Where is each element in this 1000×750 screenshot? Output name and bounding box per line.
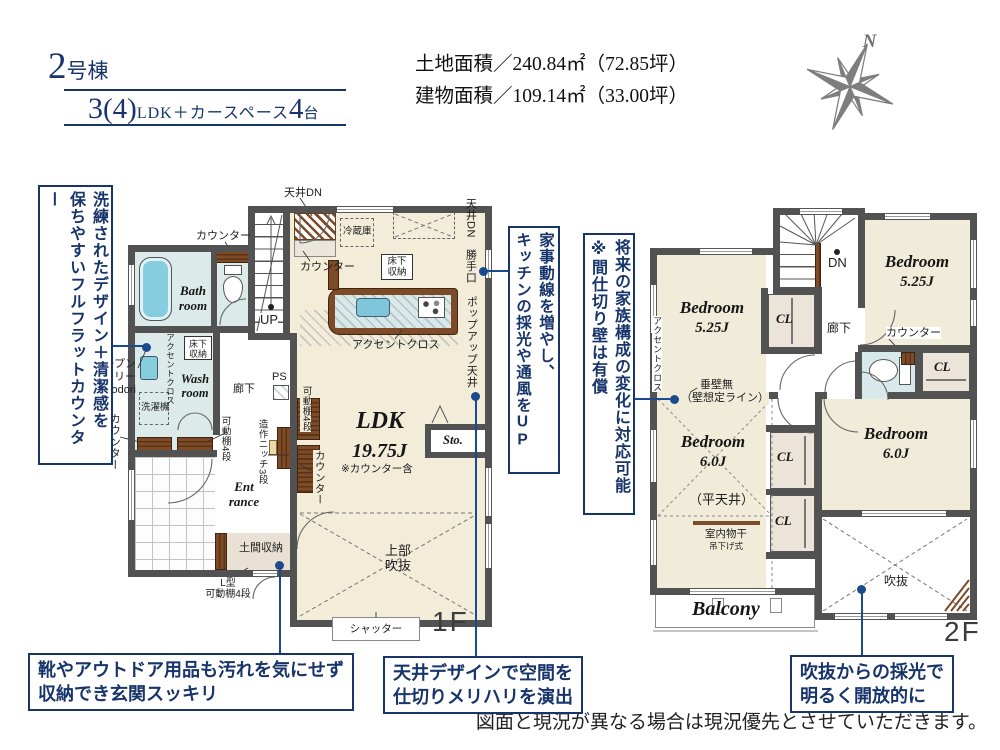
- upper-void-label: 上部吹抜: [378, 544, 418, 573]
- floor-tag-1f: 1F: [432, 606, 469, 638]
- note-ceiling-line1: 天井デザインで空間を: [393, 663, 573, 683]
- bedroom-size: 6.0J: [700, 454, 726, 470]
- bedroom-size: 6.0J: [883, 446, 909, 462]
- hallway-label-2f: 廊下: [827, 322, 851, 335]
- note-void-light: 吹抜からの採光で明るく開放的に: [790, 655, 954, 713]
- wall: [773, 208, 780, 294]
- corridor-niche-wood: [277, 427, 291, 469]
- closet-b-rail: [926, 379, 966, 381]
- l-shelf-line2: 可動棚4段: [205, 589, 251, 600]
- floor-plan-page: 2号棟 3(4)LDK＋カースペース4台 土地面積／240.84㎡（72.85坪…: [0, 0, 1000, 750]
- window: [128, 470, 135, 520]
- callout-line: [630, 398, 670, 400]
- note-flat-counter-col2: 保ちやすいフルフラットカウンター: [41, 191, 87, 459]
- underfloor-storage-label-wash: 床下収納: [184, 336, 212, 360]
- callout-dot-backdoor: [479, 267, 488, 276]
- plan-type: 3(4)LDK＋カースペース4台: [88, 92, 319, 126]
- window: [800, 208, 842, 215]
- counter-label-ldk: カウンター: [313, 450, 325, 505]
- note-kitchen-col1: 家事動線を増やし、: [534, 232, 557, 468]
- plan-ldk-text: LDK＋カースペース: [137, 105, 289, 122]
- window: [337, 206, 393, 213]
- callout-dot-popup: [471, 392, 480, 401]
- building-suffix: 号棟: [67, 59, 109, 83]
- laundry-bar: [693, 521, 760, 525]
- wall: [128, 245, 255, 252]
- laundry-label: 室内物干吊下げ式: [696, 529, 756, 553]
- ceiling-down-hatch: [294, 213, 336, 240]
- doma-label: 土間収納: [239, 542, 283, 554]
- window: [970, 240, 977, 288]
- wash-line2: room: [181, 386, 208, 400]
- washbasin-icon: [140, 356, 158, 380]
- bedroom-60-left-label: Bedroom6.0J: [663, 432, 763, 471]
- underfloor-storage-text-wash: 床下収納: [188, 339, 208, 360]
- bedroom-name: Bedroom: [680, 298, 744, 317]
- wall: [290, 333, 297, 627]
- stairs-dn-label: DN: [828, 256, 847, 271]
- underfloor-storage-text: 床下収納: [386, 257, 408, 279]
- stairs-2f-treads: [780, 243, 815, 289]
- wall: [855, 352, 862, 399]
- bathroom-label: Bathroom: [168, 284, 218, 313]
- callout-dot-void: [857, 585, 866, 594]
- window: [970, 300, 977, 326]
- wall: [815, 287, 822, 353]
- bedroom-size: 5.25J: [695, 320, 729, 336]
- wall: [888, 392, 977, 399]
- closet-a-label: CL: [776, 312, 793, 327]
- bath-line2: room: [179, 298, 207, 313]
- bedroom-name: Bedroom: [885, 252, 949, 271]
- disclaimer: 図面と現況が異なる場合は現況優先とさせていただきます。: [455, 712, 987, 733]
- closet-c-label: CL: [777, 450, 794, 465]
- window: [128, 265, 135, 305]
- callout-line: [475, 397, 477, 656]
- note-kitchen-col2: キッチンの採光や通風をUP: [511, 232, 534, 468]
- window: [970, 420, 977, 468]
- bedroom-name: Bedroom: [681, 432, 745, 451]
- bath-line1: Bath: [180, 283, 206, 298]
- note-flat-counter: 洗練されたデザイン＋清潔感を 保ちやすいフルフラットカウンター: [38, 185, 113, 465]
- window: [650, 520, 657, 565]
- toilet-tank-icon-1f: [224, 265, 242, 275]
- window: [485, 468, 492, 516]
- window: [885, 213, 930, 220]
- wall: [766, 425, 822, 432]
- wall: [766, 489, 822, 495]
- toilet-bowl-icon-2f: [869, 359, 898, 382]
- bedroom-name: Bedroom: [864, 424, 928, 443]
- window: [700, 248, 752, 255]
- washer-label: 洗濯機: [141, 403, 170, 414]
- underfloor-storage-label: 床下収納: [381, 254, 413, 280]
- wall: [128, 450, 217, 457]
- l-shelf-label: L型可動棚4段: [196, 578, 260, 600]
- kitchen-sink-icon: [356, 298, 390, 317]
- counter-label-b: カウンター: [300, 261, 355, 273]
- wall: [858, 345, 977, 352]
- hallway-label-1f: 廊下: [233, 383, 255, 395]
- note-kitchen-col2-up: UP: [514, 414, 531, 450]
- ps-shaft: [273, 385, 289, 400]
- popup-ceiling-label: ポップアップ天井: [465, 296, 477, 388]
- entrance-line2: rance: [229, 494, 259, 509]
- bedroom-60-right-label: Bedroom6.0J: [846, 424, 946, 463]
- floor-tag-2f: 2F: [944, 616, 981, 648]
- stairs-up-label: UP: [260, 313, 278, 328]
- note-genkan: 靴やアウトドア用品も汚れを気にせず収納でき玄関スッキリ: [28, 653, 354, 711]
- ps-label: PS: [272, 371, 287, 383]
- niche-label: 造作ニッチ3段: [256, 419, 267, 485]
- wall: [766, 552, 822, 559]
- shutter-label: シャッター: [332, 617, 420, 641]
- building-number: 2: [48, 46, 67, 87]
- stairs-2f-post: [815, 243, 821, 290]
- plan-ldk-count: 3: [88, 92, 103, 125]
- stairs-up-dot: [268, 304, 274, 310]
- note-future-col1: 将来の家族構成の変化に対応可能: [609, 239, 632, 509]
- wall: [248, 206, 255, 340]
- building-title: 2号棟: [48, 46, 109, 87]
- back-door-label: 勝手口: [464, 249, 476, 284]
- shelf-label-wash: 可動棚4段: [219, 416, 230, 462]
- ldk-note-label: ※カウンター含: [341, 464, 413, 476]
- void-label: 吹抜: [884, 575, 908, 588]
- wall: [761, 348, 822, 354]
- no-wall-label-line1: 垂壁無: [700, 379, 733, 391]
- compass-star: [795, 30, 905, 135]
- window: [650, 430, 657, 482]
- wall: [761, 288, 768, 354]
- entrance-label: Entrance: [218, 480, 270, 509]
- plan-ldk-paren: (4): [103, 93, 137, 125]
- window: [895, 613, 947, 620]
- wash-line1: Wash: [181, 372, 209, 386]
- plan-cars-unit: 台: [304, 106, 319, 122]
- balcony-label: Balcony: [692, 598, 760, 620]
- laundry-line2: 吊下げ式: [709, 541, 743, 551]
- void-corner-hatch: [945, 580, 969, 611]
- ceiling-dn-right-label: 天井DN: [464, 198, 476, 238]
- land-area: 土地面積／240.84㎡（72.85坪）: [415, 54, 688, 76]
- counter-label-a: カウンター: [196, 230, 251, 242]
- ldk-size-label: 19.75J: [352, 440, 407, 462]
- bedroom-size: 5.25J: [900, 274, 934, 290]
- closet-d-label: CL: [775, 514, 792, 529]
- note-genkan-line2: 収納でき玄関スッキリ: [38, 684, 218, 704]
- counter-label-2f: カウンター: [886, 327, 941, 339]
- callout-line: [861, 590, 863, 655]
- closet-c-rail: [804, 436, 806, 485]
- building-area: 建物面積／109.14㎡（33.00坪）: [415, 86, 688, 108]
- laundry-line1: 室内物干: [705, 528, 747, 540]
- refrigerator-label: 冷蔵庫: [343, 227, 372, 238]
- counter-strip: [294, 240, 336, 257]
- note-future-col2: ※間仕切り壁は有償: [586, 239, 609, 509]
- compass-icon: N: [795, 30, 905, 135]
- note-kitchen: 家事動線を増やし、 キッチンの採光や通風をUP: [508, 226, 560, 474]
- bedroom-525-left-label: Bedroom5.25J: [662, 298, 762, 337]
- stove-icon: [418, 297, 445, 318]
- shelf-label-ldk: 可動棚4段: [300, 386, 311, 432]
- doma-l-shelf-wood: [215, 533, 227, 570]
- wall: [858, 215, 865, 308]
- closet-d-rail: [804, 499, 806, 548]
- title-rule-bottom: [64, 124, 346, 126]
- accent-cross-label-1f: アクセントクロス: [352, 339, 439, 351]
- note-kitchen-col2-text: キッチンの採光や通風を: [514, 232, 531, 414]
- note-flat-counter-col1: 洗練されたデザイン＋清潔感を: [87, 191, 110, 459]
- entrance-porch-tile: [135, 457, 215, 570]
- entrance-door-opening: [253, 570, 277, 577]
- storage-label: Sto.: [443, 433, 463, 447]
- window: [485, 524, 492, 568]
- l-shelf-line1: L型: [220, 578, 236, 589]
- flat-ceiling-label: （平天井）: [689, 493, 754, 508]
- ceiling-dn-label: 天井DN: [284, 187, 322, 199]
- entrance-line1: Ent: [234, 479, 254, 494]
- note-void-line1: 吹抜からの採光で: [800, 662, 944, 682]
- callout-dot-nowall: [670, 395, 679, 404]
- compass-north-label: N: [862, 31, 878, 52]
- balcony-window: [690, 588, 775, 595]
- plan-cars: 4: [289, 93, 304, 125]
- stairs-dn-dot: [834, 249, 840, 255]
- closet-b-label: CL: [934, 360, 951, 375]
- toilet-counter-2f: [901, 352, 915, 365]
- no-wall-label-line2: （壁想定ライン）: [681, 392, 769, 404]
- callout-dot-sanitary: [142, 343, 151, 352]
- note-genkan-line1: 靴やアウトドア用品も汚れを気にせず: [38, 660, 344, 680]
- upper-void-line2: 吹抜: [385, 558, 411, 573]
- note-ceiling-design: 天井デザインで空間を仕切りメリハリを演出: [383, 656, 583, 714]
- callout-dot-doma: [275, 561, 284, 570]
- callout-line: [279, 566, 281, 653]
- wall: [135, 326, 248, 333]
- washroom-label: Washroom: [172, 372, 218, 400]
- ldk-label: LDK: [356, 408, 404, 435]
- pantry-outline: [393, 212, 455, 239]
- note-future: 将来の家族構成の変化に対応可能 ※間仕切り壁は有償: [583, 233, 635, 515]
- niche-accent: [269, 440, 277, 455]
- wall: [425, 424, 431, 458]
- title-rule-top: [64, 89, 346, 91]
- note-ceiling-line2: 仕切りメリハリを演出: [393, 687, 573, 707]
- upper-void-line1: 上部: [385, 543, 411, 558]
- wall: [815, 392, 827, 399]
- bedroom-525-right-label: Bedroom5.25J: [866, 252, 968, 291]
- window: [862, 510, 946, 517]
- wall: [248, 333, 297, 340]
- balcony-post-2: [770, 598, 782, 613]
- accent-cross-label-wash: アクセントクロス: [165, 333, 175, 405]
- note-void-line2: 明るく開放的に: [800, 686, 926, 706]
- wall: [283, 213, 290, 333]
- accent-cross-label-2f: アクセントクロス: [652, 316, 662, 392]
